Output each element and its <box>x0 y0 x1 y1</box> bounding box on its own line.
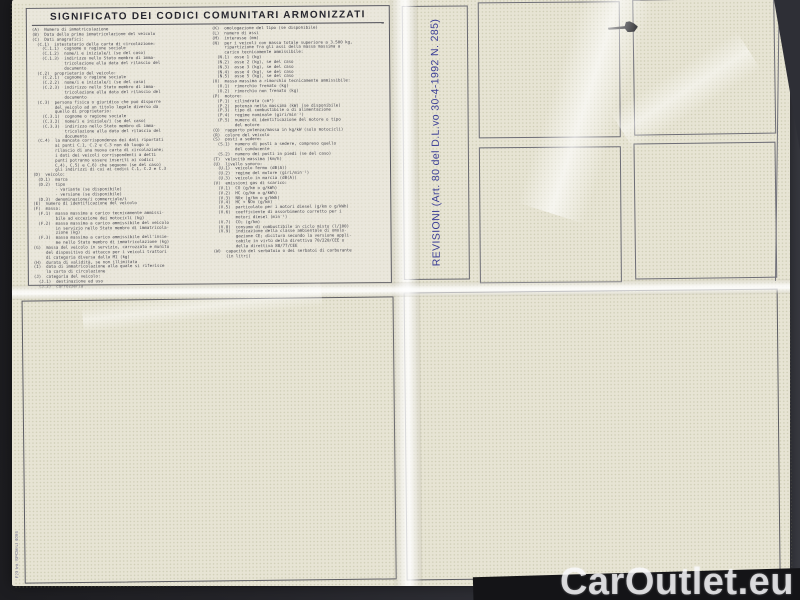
print-code: F23 Int. SPCM-LI 4094 <box>14 531 19 578</box>
revision-stamp-box <box>479 146 622 283</box>
legend-title: SIGNIFICATO DEI CODICI COMUNITARI ARMONI… <box>32 8 384 26</box>
revision-stamp-box <box>633 142 776 280</box>
legend-right-column: (K) omologazione del tipo (se disponibil… <box>212 25 386 288</box>
background-corner <box>774 0 800 150</box>
blank-panel-left <box>22 296 397 583</box>
legend-columns: (A) Numero di immatricolazione (B) Data … <box>32 25 386 289</box>
document-content: SIGNIFICATO DEI CODICI COMUNITARI ARMONI… <box>10 0 793 589</box>
revision-label: REVISIONI (Art. 80 del D.L.vo 30-4-1992 … <box>429 19 443 267</box>
revision-label-box: REVISIONI (Art. 80 del D.L.vo 30-4-1992 … <box>402 5 470 280</box>
photo-background: SIGNIFICATO DEI CODICI COMUNITARI ARMONI… <box>0 0 800 600</box>
blank-panel-right <box>404 289 781 581</box>
legend-panel: SIGNIFICATO DEI CODICI COMUNITARI ARMONI… <box>26 5 392 286</box>
revision-stamp-box <box>478 1 621 138</box>
revision-stamp-grid <box>478 0 776 283</box>
document-sheet: SIGNIFICATO DEI CODICI COMUNITARI ARMONI… <box>12 0 790 586</box>
revision-stamp-box <box>632 0 776 136</box>
watermark: CarOutlet.eu <box>560 561 794 600</box>
legend-left-column: (A) Numero di immatricolazione (B) Data … <box>32 27 206 290</box>
